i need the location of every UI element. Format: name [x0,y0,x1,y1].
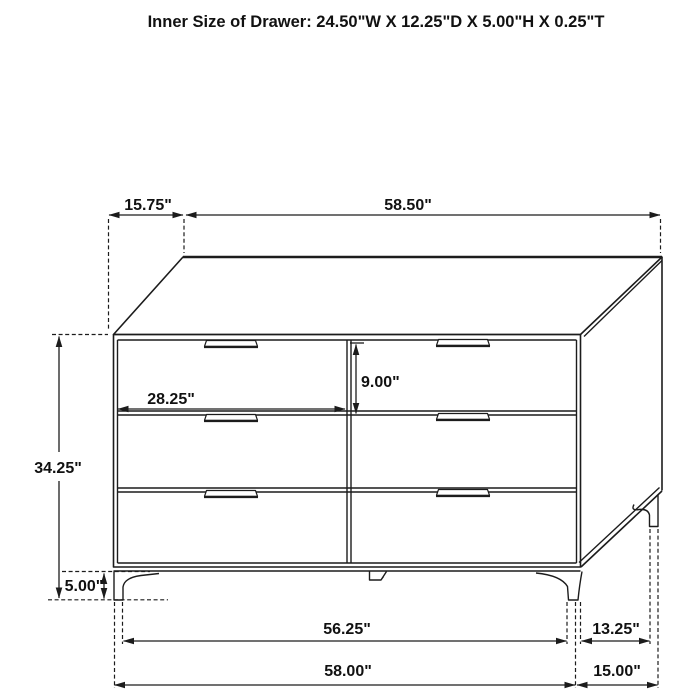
dim-label-leg-height: 5.00" [65,578,104,595]
dimension-lines [59,215,660,685]
drawer-pull-middle-right [436,414,490,421]
drawer-pull-top-left [204,341,258,348]
front-left-leg [114,572,159,601]
drawer-pull-top-right [436,340,490,347]
dresser-top-face [114,257,663,335]
drawer-pull-bottom-right [436,490,490,497]
front-right-leg [536,572,582,601]
dim-label-overall-depth: 15.00" [593,663,641,680]
drawer-frame-lines [114,340,581,571]
center-glide-foot [370,572,387,581]
dim-label-leg-span-width: 56.25" [323,621,371,638]
page-title: Inner Size of Drawer: 24.50"W X 12.25"D … [148,13,605,31]
dim-label-leg-span-depth: 13.25" [592,621,640,638]
extension-lines [48,219,661,688]
dim-label-top-width: 58.50" [384,197,432,214]
dresser-side-bottom-edge-inner [579,488,660,563]
dim-label-overall-width: 58.00" [324,663,372,680]
dimension-labels: 15.75" 58.50" 28.25" 9.00" 34.25" 5.00" … [34,197,641,680]
dresser-dimension-diagram: Inner Size of Drawer: 24.50"W X 12.25"D … [0,0,700,700]
dresser-outline [114,257,663,600]
dim-label-overall-height: 34.25" [34,460,82,477]
dresser-side-top-edge [584,261,662,337]
dim-label-drawer-height: 9.00" [361,374,400,391]
dim-label-drawer-width: 28.25" [147,391,195,408]
dim-label-top-depth: 15.75" [124,197,172,214]
drawer-pull-bottom-left [204,491,258,498]
dimension-diagram-page: Inner Size of Drawer: 24.50"W X 12.25"D … [0,0,700,700]
drawer-pull-middle-left [204,415,258,422]
